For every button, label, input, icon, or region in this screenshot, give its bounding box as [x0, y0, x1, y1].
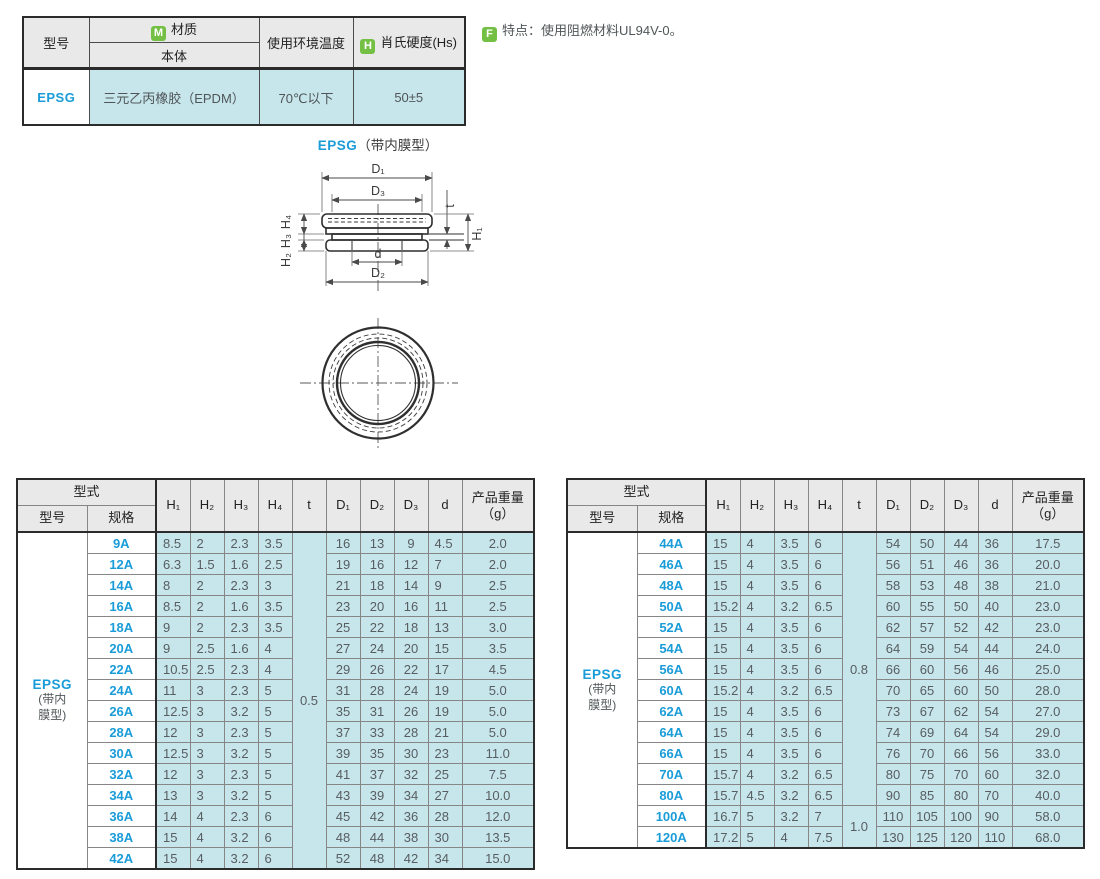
header-h1: H₁ [706, 479, 740, 532]
h2-value: 5 [740, 827, 774, 849]
d-value: 70 [978, 785, 1012, 806]
h3-value: 3.2 [224, 701, 258, 722]
h1-value: 6.3 [156, 554, 190, 575]
dim-label-d: d [375, 247, 382, 261]
spec-row-42A: 42A1543.265248423415.0 [17, 848, 534, 870]
d2-value: 67 [910, 701, 944, 722]
d3-value: 100 [944, 806, 978, 827]
d2-value: 39 [360, 785, 394, 806]
spec-row-56A: 56A1543.566660564625.0 [567, 659, 1084, 680]
d2-value: 57 [910, 617, 944, 638]
header-d3: D₃ [394, 479, 428, 532]
h1-value: 15 [706, 659, 740, 680]
d3-value: 14 [394, 575, 428, 596]
h1-value: 15.7 [706, 764, 740, 785]
d1-value: 39 [326, 743, 360, 764]
d-value: 7 [428, 554, 462, 575]
h3-value: 3.2 [224, 827, 258, 848]
d-value: 54 [978, 722, 1012, 743]
h3-value: 3.5 [774, 575, 808, 596]
info-header-row-1: 型号 M材质 使用环境温度 H肖氏硬度(Hs) [23, 17, 465, 43]
d1-value: 37 [326, 722, 360, 743]
h4-value: 7.5 [808, 827, 842, 849]
header-d: d [978, 479, 1012, 532]
h3-value: 2.3 [224, 764, 258, 785]
d-value: 23 [428, 743, 462, 764]
h4-value: 6.5 [808, 596, 842, 617]
spec-table-header: 型式 H₁ H₂ H₃ H₄ t D₁ D₂ D₃ d 产品重量 （g） 型号 … [567, 479, 1084, 532]
weight-value: 23.0 [1012, 596, 1084, 617]
d-value: 30 [428, 827, 462, 848]
d2-value: 13 [360, 532, 394, 554]
d2-value: 24 [360, 638, 394, 659]
weight-value: 5.0 [462, 680, 534, 701]
h2-value: 2 [190, 617, 224, 638]
info-header-hardness: H肖氏硬度(Hs) [353, 17, 465, 69]
h4-value: 6.5 [808, 764, 842, 785]
spec-row-22A: 22A10.52.52.34292622174.5 [17, 659, 534, 680]
header-d: d [428, 479, 462, 532]
weight-value: 3.5 [462, 638, 534, 659]
h1-value: 17.2 [706, 827, 740, 849]
spec-row-14A: 14A822.3321181492.5 [17, 575, 534, 596]
h4-value: 2.5 [258, 554, 292, 575]
h3-value: 3.5 [774, 659, 808, 680]
spec-row-66A: 66A1543.567670665633.0 [567, 743, 1084, 764]
d2-value: 35 [360, 743, 394, 764]
h2-value: 3 [190, 743, 224, 764]
weight-value: 2.5 [462, 596, 534, 617]
header-t: t [842, 479, 876, 532]
h3-value: 1.6 [224, 554, 258, 575]
hardness-icon: H [360, 39, 375, 54]
d1-value: 16 [326, 532, 360, 554]
header-weight-label: 产品重量 [463, 490, 534, 506]
h4-value: 5 [258, 680, 292, 701]
d3-value: 20 [394, 638, 428, 659]
spec-row-120A: 120A17.2547.513012512011068.0 [567, 827, 1084, 849]
spec-table-right: 型式 H₁ H₂ H₃ H₄ t D₁ D₂ D₃ d 产品重量 （g） 型号 … [566, 478, 1085, 849]
spec-code: 36A [87, 806, 156, 827]
weight-value: 33.0 [1012, 743, 1084, 764]
h3-value: 2.3 [224, 659, 258, 680]
h3-value: 3.2 [774, 596, 808, 617]
h1-value: 15 [706, 532, 740, 554]
h4-value: 5 [258, 701, 292, 722]
model-note-line: (带内 [18, 692, 87, 708]
weight-value: 58.0 [1012, 806, 1084, 827]
spec-row-20A: 20A92.51.64272420153.5 [17, 638, 534, 659]
spec-code: 50A [637, 596, 706, 617]
h2-value: 4 [740, 722, 774, 743]
d-value: 17 [428, 659, 462, 680]
d2-value: 37 [360, 764, 394, 785]
weight-value: 20.0 [1012, 554, 1084, 575]
d1-value: 23 [326, 596, 360, 617]
d2-value: 105 [910, 806, 944, 827]
d2-value: 18 [360, 575, 394, 596]
h3-value: 3.5 [774, 617, 808, 638]
d-value: 21 [428, 722, 462, 743]
h3-value: 4 [774, 827, 808, 849]
h4-value: 6.5 [808, 785, 842, 806]
header-weight: 产品重量 （g） [1012, 479, 1084, 532]
d3-value: 34 [394, 785, 428, 806]
d-value: 19 [428, 701, 462, 722]
spec-table-header: 型式 H₁ H₂ H₃ H₄ t D₁ D₂ D₃ d 产品重量 （g） 型号 … [17, 479, 534, 532]
d-value: 27 [428, 785, 462, 806]
header-weight-unit: （g） [463, 506, 534, 522]
h3-value: 3.2 [774, 764, 808, 785]
h3-value: 3.5 [774, 554, 808, 575]
spec-row-34A: 34A1333.254339342710.0 [17, 785, 534, 806]
spec-code: 66A [637, 743, 706, 764]
spec-code: 44A [637, 532, 706, 554]
info-header-material: M材质 [89, 17, 259, 43]
d3-value: 46 [944, 554, 978, 575]
h2-value: 4 [740, 554, 774, 575]
h3-value: 3.2 [224, 743, 258, 764]
header-weight-unit: （g） [1013, 506, 1084, 522]
header-h3: H₃ [224, 479, 258, 532]
d3-value: 62 [944, 701, 978, 722]
d2-value: 22 [360, 617, 394, 638]
spec-code: 100A [637, 806, 706, 827]
h2-value: 2 [190, 575, 224, 596]
h1-value: 15 [706, 554, 740, 575]
spec-code: 56A [637, 659, 706, 680]
weight-value: 5.0 [462, 722, 534, 743]
header-model: 型号 [567, 506, 637, 533]
feature-note-text: 特点：使用阻燃材料UL94V-0。 [502, 23, 683, 38]
d3-value: 28 [394, 722, 428, 743]
spec-row-80A: 80A15.74.53.26.59085807040.0 [567, 785, 1084, 806]
d3-value: 12 [394, 554, 428, 575]
h2-value: 4 [740, 659, 774, 680]
spec-code: 28A [87, 722, 156, 743]
spec-row-60A: 60A15.243.26.57065605028.0 [567, 680, 1084, 701]
spec-row-18A: 18A922.33.5252218133.0 [17, 617, 534, 638]
h2-value: 4 [740, 532, 774, 554]
h3-value: 3.2 [774, 680, 808, 701]
info-header-temp: 使用环境温度 [259, 17, 353, 69]
spec-row-9A: EPSG(带内膜型)9A8.522.33.50.5161394.52.0 [17, 532, 534, 554]
h2-value: 3 [190, 680, 224, 701]
d1-value: 45 [326, 806, 360, 827]
d-value: 54 [978, 701, 1012, 722]
spec-code: 46A [637, 554, 706, 575]
h3-value: 3.2 [224, 785, 258, 806]
d-value: 28 [428, 806, 462, 827]
h3-value: 3.2 [774, 806, 808, 827]
info-hardness-value: 50±5 [353, 69, 465, 126]
d2-value: 42 [360, 806, 394, 827]
h4-value: 6 [808, 701, 842, 722]
spec-code: 18A [87, 617, 156, 638]
d-value: 44 [978, 638, 1012, 659]
spec-table-left: 型式 H₁ H₂ H₃ H₄ t D₁ D₂ D₃ d 产品重量 （g） 型号 … [16, 478, 535, 870]
d1-value: 56 [876, 554, 910, 575]
d-value: 46 [978, 659, 1012, 680]
h4-value: 6 [808, 743, 842, 764]
dimension-diagram: D₁ D₃ t H₄ H₃ H₂ H₁ d D₂ [272, 156, 502, 466]
d3-value: 70 [944, 764, 978, 785]
d3-value: 42 [394, 848, 428, 870]
spec-row-26A: 26A12.533.25353126195.0 [17, 701, 534, 722]
d2-value: 65 [910, 680, 944, 701]
d1-value: 27 [326, 638, 360, 659]
h3-value: 3.5 [774, 722, 808, 743]
grommet-cross-section [322, 214, 432, 251]
weight-value: 3.0 [462, 617, 534, 638]
weight-value: 27.0 [1012, 701, 1084, 722]
h4-value: 6 [808, 722, 842, 743]
spec-code: 120A [637, 827, 706, 849]
header-type-group: 型式 [567, 479, 706, 506]
d-value: 9 [428, 575, 462, 596]
d3-value: 9 [394, 532, 428, 554]
spec-row-28A: 28A1232.35373328215.0 [17, 722, 534, 743]
h4-value: 5 [258, 785, 292, 806]
h3-value: 2.3 [224, 575, 258, 596]
d-value: 60 [978, 764, 1012, 785]
h1-value: 8 [156, 575, 190, 596]
h1-value: 15.2 [706, 680, 740, 701]
h1-value: 15 [706, 575, 740, 596]
h1-value: 15 [706, 701, 740, 722]
h2-value: 4 [190, 848, 224, 870]
spec-row-100A: 100A16.753.271.01101051009058.0 [567, 806, 1084, 827]
spec-code: 14A [87, 575, 156, 596]
d2-value: 55 [910, 596, 944, 617]
spec-row-32A: 32A1232.35413732257.5 [17, 764, 534, 785]
h1-value: 9 [156, 638, 190, 659]
h1-value: 16.7 [706, 806, 740, 827]
d3-value: 32 [394, 764, 428, 785]
d-value: 13 [428, 617, 462, 638]
d2-value: 85 [910, 785, 944, 806]
feature-note: F特点：使用阻燃材料UL94V-0。 [482, 20, 683, 42]
d-value: 15 [428, 638, 462, 659]
d1-value: 76 [876, 743, 910, 764]
diagram-title: EPSG（带内膜型） [278, 134, 478, 154]
d2-value: 70 [910, 743, 944, 764]
h2-value: 2.5 [190, 638, 224, 659]
t-value: 1.0 [842, 806, 876, 849]
spec-row-36A: 36A1442.364542362812.0 [17, 806, 534, 827]
spec-row-70A: 70A15.743.26.58075706032.0 [567, 764, 1084, 785]
h2-value: 4 [190, 806, 224, 827]
spec-code: 26A [87, 701, 156, 722]
h2-value: 3 [190, 722, 224, 743]
h3-value: 3.5 [774, 743, 808, 764]
d1-value: 80 [876, 764, 910, 785]
weight-value: 11.0 [462, 743, 534, 764]
spec-code: 32A [87, 764, 156, 785]
spec-row-50A: 50A15.243.26.56055504023.0 [567, 596, 1084, 617]
header-h4: H₄ [808, 479, 842, 532]
h4-value: 6 [258, 806, 292, 827]
spec-code: 12A [87, 554, 156, 575]
weight-value: 2.5 [462, 575, 534, 596]
h1-value: 15 [706, 617, 740, 638]
d-value: 25 [428, 764, 462, 785]
spec-code: 22A [87, 659, 156, 680]
header-weight-label: 产品重量 [1013, 490, 1084, 506]
d2-value: 16 [360, 554, 394, 575]
h3-value: 3.5 [774, 638, 808, 659]
h2-value: 4 [740, 638, 774, 659]
header-h1: H₁ [156, 479, 190, 532]
d2-value: 125 [910, 827, 944, 849]
h2-value: 2.5 [190, 659, 224, 680]
d3-value: 44 [944, 532, 978, 554]
h4-value: 6.5 [808, 680, 842, 701]
header-spec: 规格 [637, 506, 706, 533]
header-spec: 规格 [87, 506, 156, 533]
d3-value: 54 [944, 638, 978, 659]
weight-value: 2.0 [462, 554, 534, 575]
d1-value: 43 [326, 785, 360, 806]
header-type-group: 型式 [17, 479, 156, 506]
d2-value: 31 [360, 701, 394, 722]
h2-value: 1.5 [190, 554, 224, 575]
h1-value: 15 [706, 638, 740, 659]
h3-value: 1.6 [224, 638, 258, 659]
h4-value: 6 [808, 554, 842, 575]
h3-value: 2.3 [224, 806, 258, 827]
weight-value: 10.0 [462, 785, 534, 806]
h3-value: 3.5 [774, 532, 808, 554]
d1-value: 60 [876, 596, 910, 617]
d-value: 11 [428, 596, 462, 617]
h4-value: 6 [808, 532, 842, 554]
spec-code: 54A [637, 638, 706, 659]
d3-value: 26 [394, 701, 428, 722]
h4-value: 3.5 [258, 532, 292, 554]
d2-value: 48 [360, 848, 394, 870]
d2-value: 44 [360, 827, 394, 848]
d3-value: 120 [944, 827, 978, 849]
model-note-line: 膜型) [18, 708, 87, 724]
h1-value: 12.5 [156, 701, 190, 722]
d-value: 19 [428, 680, 462, 701]
d3-value: 66 [944, 743, 978, 764]
spec-code: 48A [637, 575, 706, 596]
d1-value: 48 [326, 827, 360, 848]
model-name: EPSG [18, 677, 87, 692]
spec-code: 42A [87, 848, 156, 870]
weight-value: 13.5 [462, 827, 534, 848]
d3-value: 18 [394, 617, 428, 638]
dim-label-h3: H₃ [279, 234, 293, 248]
d3-value: 30 [394, 743, 428, 764]
h2-value: 4 [740, 764, 774, 785]
model-cell: EPSG(带内膜型) [567, 532, 637, 848]
d1-value: 58 [876, 575, 910, 596]
h4-value: 3 [258, 575, 292, 596]
header-h2: H₂ [740, 479, 774, 532]
d2-value: 53 [910, 575, 944, 596]
spec-code: 52A [637, 617, 706, 638]
model-name: EPSG [568, 667, 637, 682]
d1-value: 41 [326, 764, 360, 785]
header-model: 型号 [17, 506, 87, 533]
h1-value: 14 [156, 806, 190, 827]
t-value: 0.5 [292, 532, 326, 869]
spec-row-24A: 24A1132.35312824195.0 [17, 680, 534, 701]
d1-value: 70 [876, 680, 910, 701]
spec-row-44A: EPSG(带内膜型)44A1543.560.85450443617.5 [567, 532, 1084, 554]
spec-code: 70A [637, 764, 706, 785]
dim-label-h4: H₄ [279, 215, 293, 229]
h4-value: 6 [808, 617, 842, 638]
d1-value: 52 [326, 848, 360, 870]
weight-value: 15.0 [462, 848, 534, 870]
header-d1: D₁ [326, 479, 360, 532]
d1-value: 19 [326, 554, 360, 575]
header-weight: 产品重量 （g） [462, 479, 534, 532]
h1-value: 10.5 [156, 659, 190, 680]
h1-value: 15 [156, 848, 190, 870]
d2-value: 28 [360, 680, 394, 701]
h1-value: 9 [156, 617, 190, 638]
spec-code: 80A [637, 785, 706, 806]
h4-value: 7 [808, 806, 842, 827]
d-value: 56 [978, 743, 1012, 764]
dim-label-d1: D₁ [371, 162, 384, 176]
spec-code: 60A [637, 680, 706, 701]
header-h2: H₂ [190, 479, 224, 532]
header-d3: D₃ [944, 479, 978, 532]
d3-value: 24 [394, 680, 428, 701]
header-h3: H₃ [774, 479, 808, 532]
grommet-front-view [300, 318, 458, 448]
spec-row-52A: 52A1543.566257524223.0 [567, 617, 1084, 638]
weight-value: 12.0 [462, 806, 534, 827]
model-note-line: 膜型) [568, 698, 637, 714]
dim-label-h1: H₁ [470, 227, 484, 240]
d3-value: 64 [944, 722, 978, 743]
d1-value: 66 [876, 659, 910, 680]
h3-value: 2.3 [224, 680, 258, 701]
d3-value: 22 [394, 659, 428, 680]
h3-value: 3.2 [224, 848, 258, 870]
d3-value: 60 [944, 680, 978, 701]
h4-value: 6 [808, 638, 842, 659]
h1-value: 8.5 [156, 532, 190, 554]
d3-value: 16 [394, 596, 428, 617]
diagram-title-suffix: （带内膜型） [357, 138, 438, 153]
d3-value: 48 [944, 575, 978, 596]
d-value: 36 [978, 532, 1012, 554]
spec-code: 20A [87, 638, 156, 659]
h4-value: 4 [258, 659, 292, 680]
weight-value: 21.0 [1012, 575, 1084, 596]
weight-value: 5.0 [462, 701, 534, 722]
info-data-row: EPSG 三元乙丙橡胶（EPDM） 70℃以下 50±5 [23, 69, 465, 126]
d2-value: 26 [360, 659, 394, 680]
h2-value: 3 [190, 764, 224, 785]
d2-value: 69 [910, 722, 944, 743]
spec-row-54A: 54A1543.566459544424.0 [567, 638, 1084, 659]
d-value: 90 [978, 806, 1012, 827]
h2-value: 4 [190, 827, 224, 848]
page-root: { "colors": { "accent_blue": "#1a9cd8", … [0, 0, 1100, 879]
spec-code: 34A [87, 785, 156, 806]
d1-value: 31 [326, 680, 360, 701]
h4-value: 3.5 [258, 596, 292, 617]
